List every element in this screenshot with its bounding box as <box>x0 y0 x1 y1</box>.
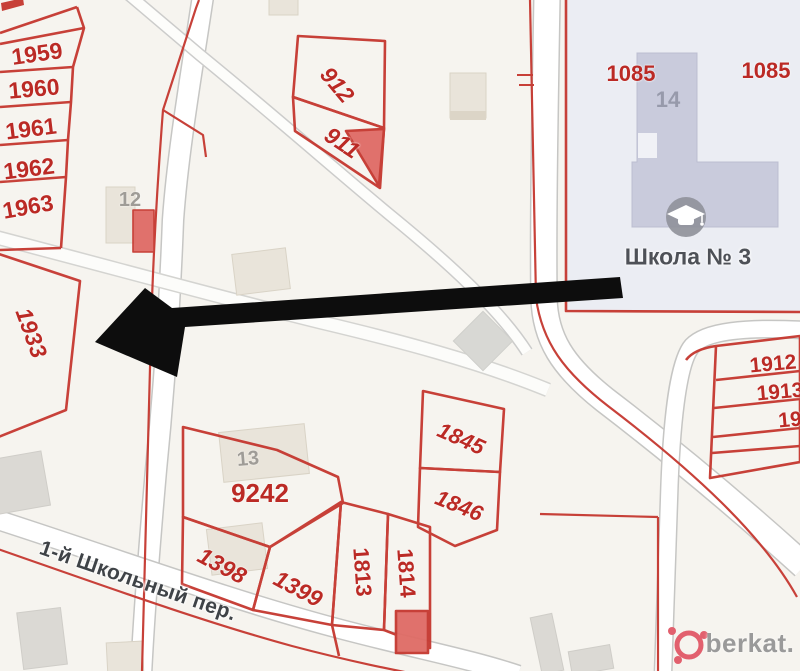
parcel-line <box>712 446 800 453</box>
parcel-line <box>0 140 68 145</box>
parcel-line <box>0 177 66 182</box>
building-12 <box>106 187 135 243</box>
building-red-1814 <box>396 611 428 653</box>
building <box>17 608 68 670</box>
parcel-912-outline <box>293 36 385 128</box>
building <box>568 645 614 671</box>
parcel-line <box>716 371 800 380</box>
building <box>0 451 50 514</box>
parcel-1933-outline <box>0 253 80 438</box>
parcel-line <box>0 7 77 33</box>
cut-label-mark <box>1 0 24 11</box>
parcel-line <box>714 399 800 408</box>
school-building-notch <box>638 133 657 158</box>
graduation-cap-tassel-dot <box>700 222 704 226</box>
parcel-line <box>0 67 73 72</box>
berkat-logo-icon <box>668 627 708 664</box>
building-red-12 <box>133 210 154 252</box>
parcel-1813-outline <box>332 502 388 630</box>
parcel-line <box>0 102 71 107</box>
berkat-logo-dot <box>700 631 708 639</box>
parcel-1846-outline <box>418 468 500 546</box>
cadastral-map-canvas[interactable]: 1959 1960 1961 1962 1963 912 911 1085 10… <box>0 0 800 671</box>
building <box>232 248 291 295</box>
parcel-line <box>0 28 84 44</box>
berkat-logo-ring <box>677 633 701 657</box>
building-shadow-strip <box>450 111 486 120</box>
graduation-cap-base <box>678 217 694 225</box>
map-graphics <box>0 0 800 671</box>
berkat-logo-dot <box>674 656 682 664</box>
building <box>206 523 267 575</box>
cadastral-line-horizontal <box>540 514 658 517</box>
berkat-logo-dot <box>668 627 676 635</box>
parcel-line <box>713 428 800 437</box>
building-13 <box>219 424 310 483</box>
parcel-stack-right-edge <box>61 7 84 248</box>
building <box>106 641 144 671</box>
parcel-1845-outline <box>420 391 504 472</box>
building <box>530 613 564 671</box>
building <box>269 0 298 15</box>
